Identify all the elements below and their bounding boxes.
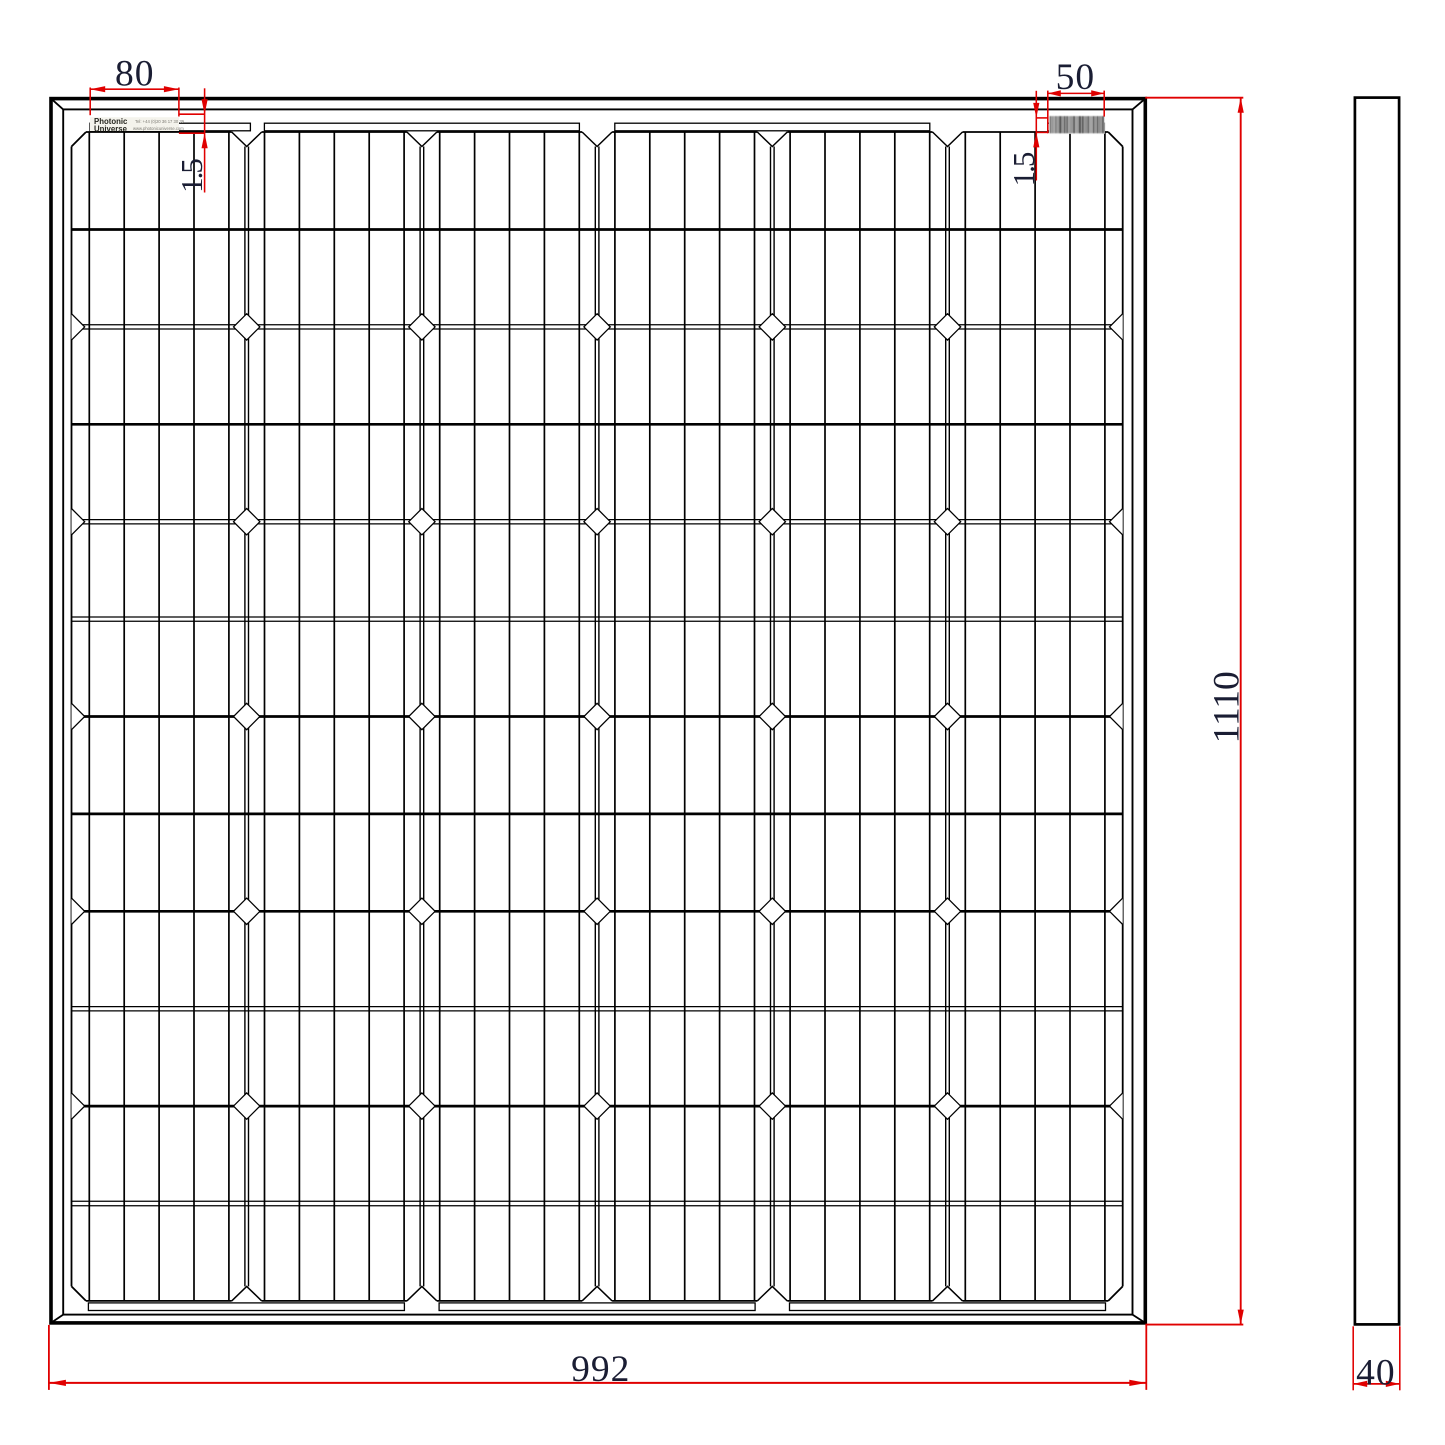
svg-text:www.photonicuniverse.com: www.photonicuniverse.com (133, 126, 184, 131)
svg-text:40: 40 (1356, 1353, 1396, 1394)
svg-text:1.5: 1.5 (174, 159, 209, 193)
svg-text:80: 80 (115, 54, 155, 95)
svg-text:1110: 1110 (1207, 671, 1248, 743)
svg-text:992: 992 (571, 1349, 630, 1390)
svg-text:50: 50 (1056, 57, 1096, 98)
svg-text:Tel: +44 (0)20 36 17 30 39: Tel: +44 (0)20 36 17 30 39 (135, 119, 185, 124)
svg-text:Universe: Universe (94, 124, 128, 133)
svg-text:1.5: 1.5 (1006, 152, 1041, 186)
